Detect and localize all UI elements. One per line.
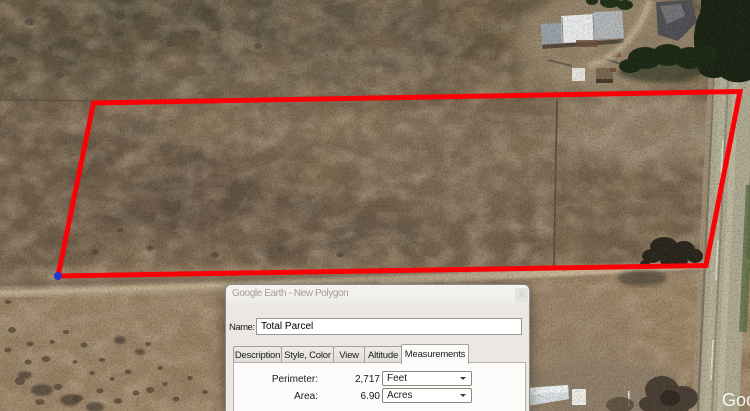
- svg-text:Goog: Goog: [722, 390, 750, 410]
